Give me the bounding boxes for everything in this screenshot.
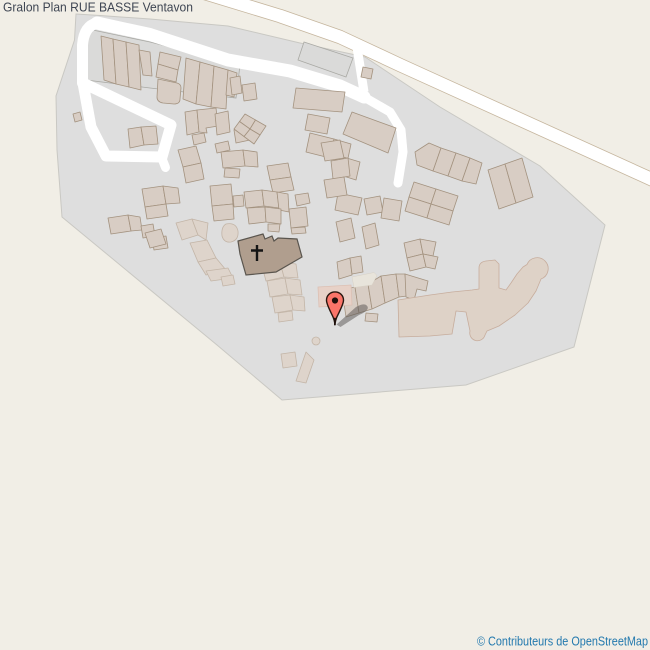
- svg-text:© Contributeurs de OpenStreetM: © Contributeurs de OpenStreetMap: [477, 634, 648, 649]
- svg-text:Gralon Plan RUE BASSE Ventavon: Gralon Plan RUE BASSE Ventavon: [3, 0, 193, 15]
